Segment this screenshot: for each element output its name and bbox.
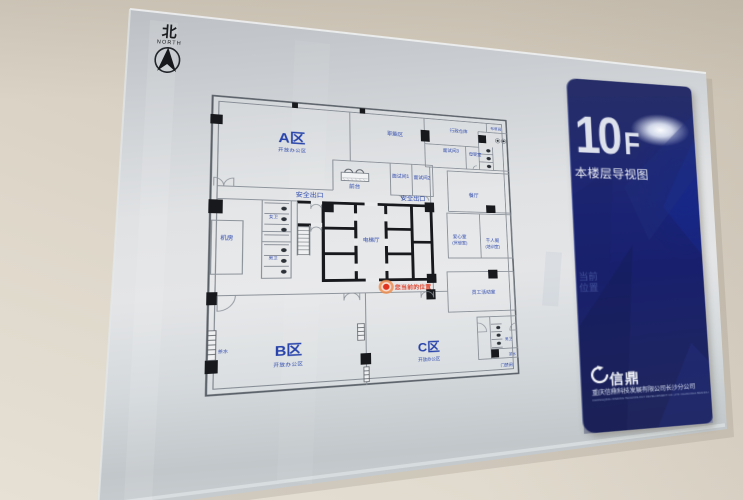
svg-text:C区: C区 (418, 340, 440, 355)
svg-text:前台: 前台 (349, 183, 360, 190)
svg-text:(冥想室): (冥想室) (452, 240, 468, 246)
svg-text:员工活动室: 员工活动室 (472, 289, 496, 296)
svg-text:(培训室): (培训室) (485, 244, 500, 249)
svg-text:千人阁: 千人阁 (486, 237, 500, 243)
svg-text:安全出口: 安全出口 (296, 190, 324, 198)
svg-text:餐厅: 餐厅 (469, 192, 479, 198)
svg-text:电梯厅: 电梯厅 (363, 237, 380, 244)
svg-text:B区: B区 (275, 342, 303, 360)
svg-text:爱心室: 爱心室 (453, 233, 467, 239)
svg-text:职能区: 职能区 (387, 130, 403, 137)
svg-text:安全出口: 安全出口 (401, 194, 426, 202)
svg-text:A区: A区 (278, 131, 305, 147)
svg-text:茶水: 茶水 (509, 351, 517, 356)
svg-text:您当前的位置: 您当前的位置 (395, 283, 432, 291)
svg-text:机房: 机房 (220, 234, 233, 241)
svg-text:门禁闸: 门禁闸 (501, 362, 513, 368)
